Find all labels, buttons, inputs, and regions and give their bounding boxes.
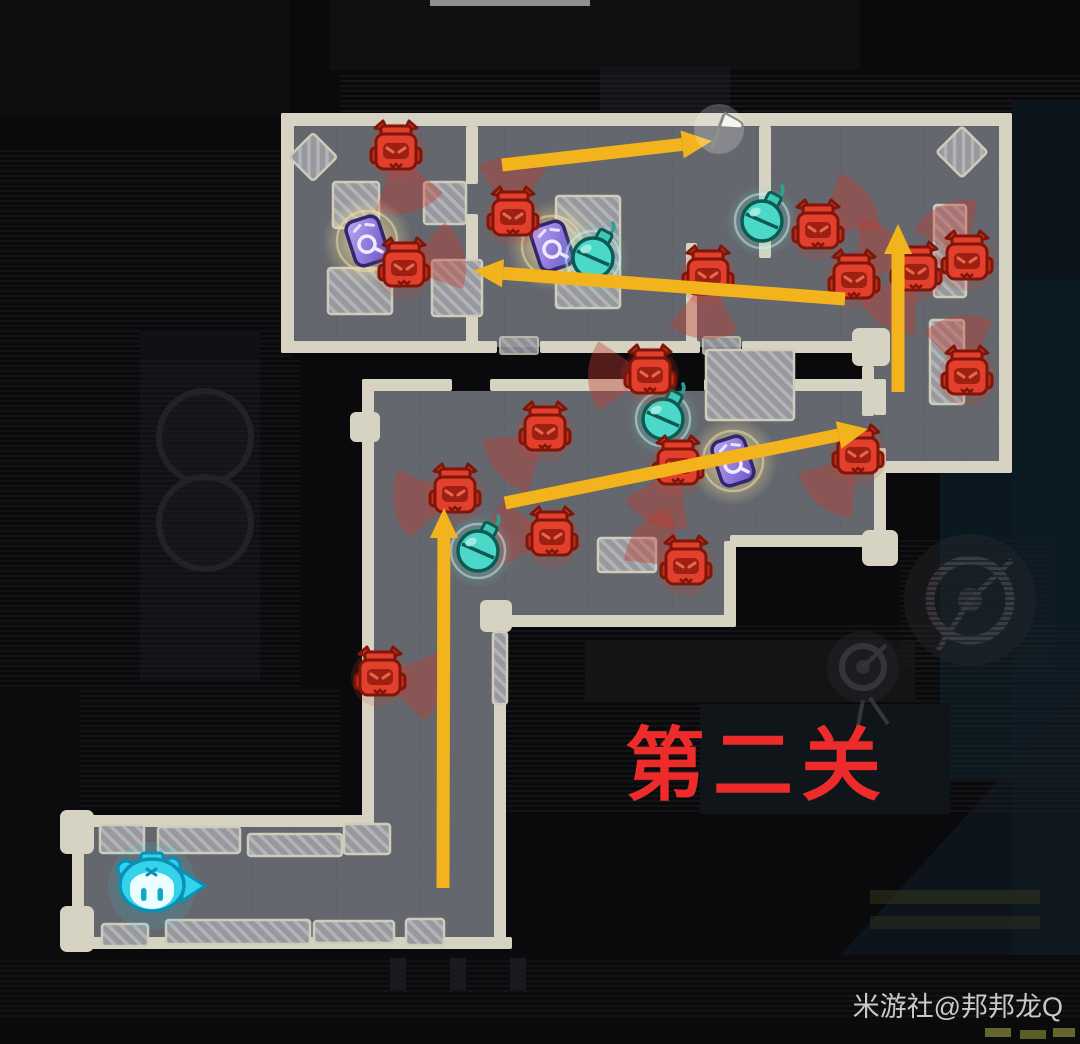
bomb-icon bbox=[441, 514, 515, 588]
background-gauge-large bbox=[900, 534, 1050, 670]
level-title: 第二关 bbox=[625, 721, 889, 810]
route-arrow-line bbox=[443, 538, 444, 888]
watermark-credit: 米游社@邦邦龙Q bbox=[853, 992, 1063, 1022]
level-map: 第二关 米游社@邦邦龙Q bbox=[0, 0, 1080, 1044]
game-map-screenshot: 第二关 米游社@邦邦龙Q bbox=[0, 0, 1080, 1044]
bomb-icon bbox=[725, 184, 799, 258]
